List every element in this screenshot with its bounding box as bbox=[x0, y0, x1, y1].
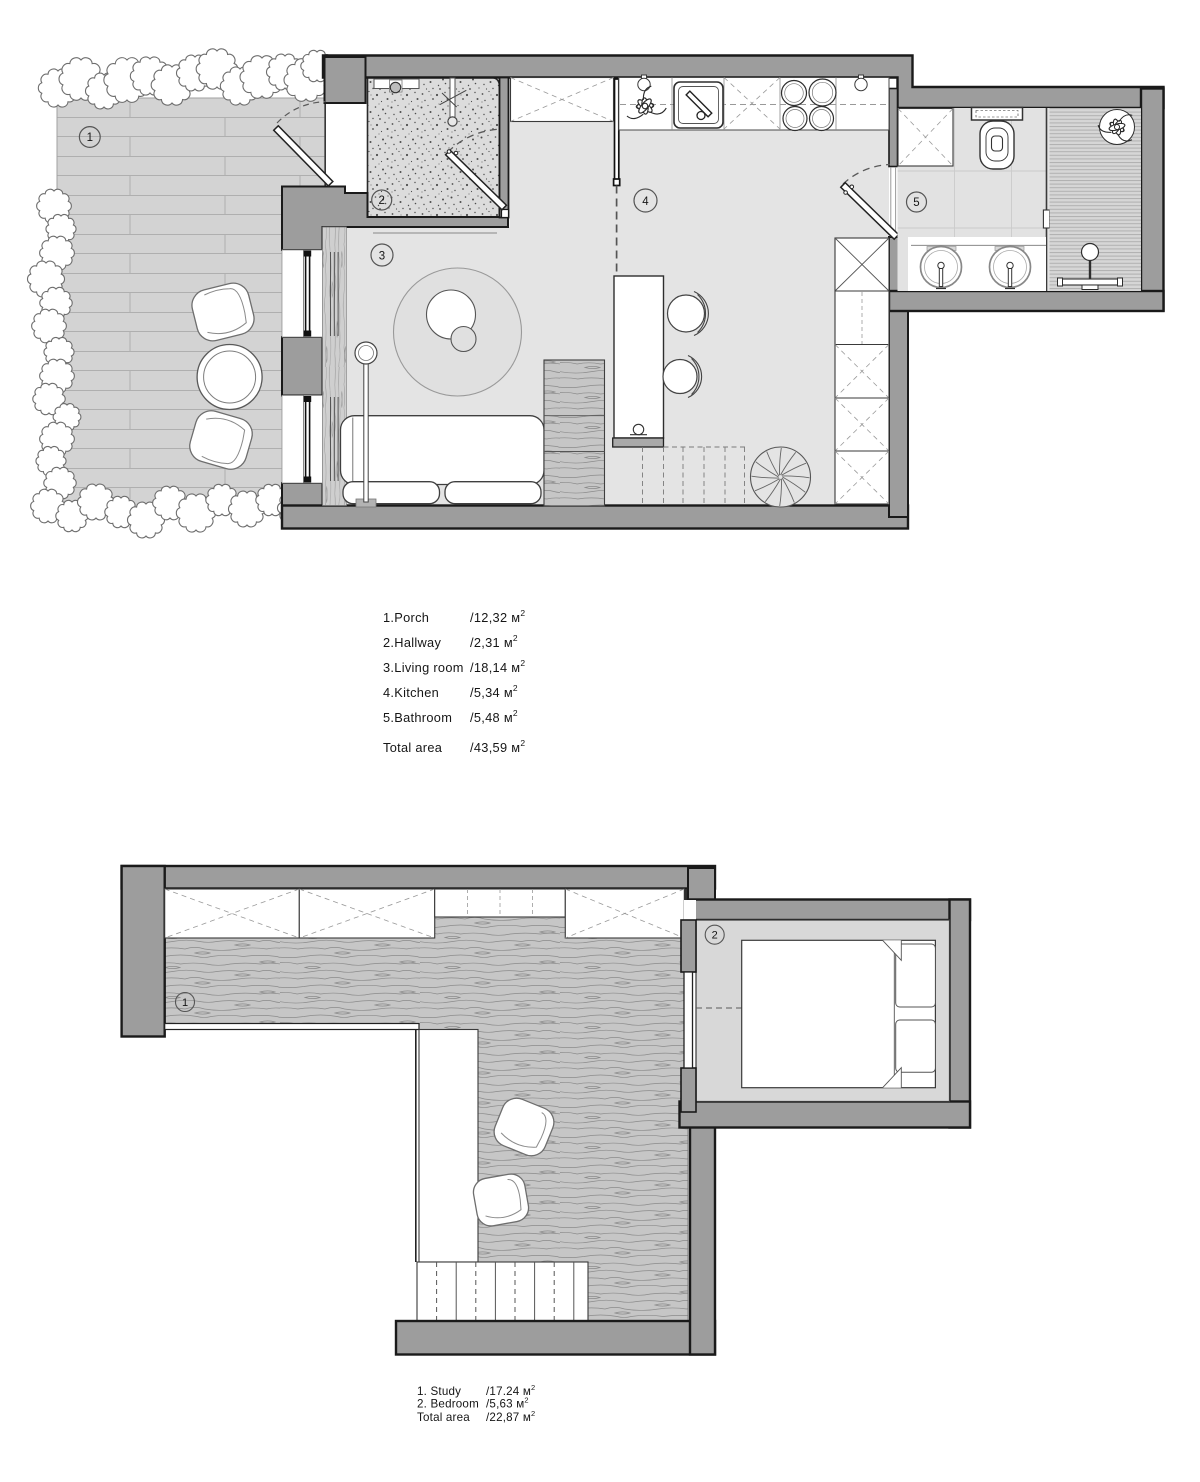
svg-text:/2,31 м2: /2,31 м2 bbox=[470, 633, 518, 650]
svg-text:2. Bedroom: 2. Bedroom bbox=[417, 1398, 479, 1411]
svg-text:1: 1 bbox=[87, 132, 93, 144]
svg-text:Total area: Total area bbox=[383, 740, 443, 755]
svg-text:/5,48 м2: /5,48 м2 bbox=[470, 708, 518, 725]
svg-text:2.Hallway: 2.Hallway bbox=[383, 635, 441, 650]
svg-text:1. Study: 1. Study bbox=[417, 1385, 461, 1398]
svg-text:5: 5 bbox=[913, 197, 919, 209]
svg-text:2: 2 bbox=[712, 930, 718, 942]
svg-text:/22,87 м2: /22,87 м2 bbox=[486, 1409, 535, 1424]
svg-text:/43,59 м2: /43,59 м2 bbox=[470, 738, 525, 755]
svg-text:3: 3 bbox=[379, 250, 385, 262]
svg-text:1: 1 bbox=[182, 997, 188, 1009]
svg-text:1.Porch: 1.Porch bbox=[383, 610, 429, 625]
svg-text:4.Kitchen: 4.Kitchen bbox=[383, 685, 439, 700]
svg-text:2: 2 bbox=[378, 195, 384, 207]
svg-text:3.Living room: 3.Living room bbox=[383, 660, 464, 675]
svg-text:Total area: Total area bbox=[417, 1411, 470, 1424]
svg-text:/12,32 м2: /12,32 м2 bbox=[470, 608, 525, 625]
svg-text:5.Bathroom: 5.Bathroom bbox=[383, 710, 452, 725]
svg-text:4: 4 bbox=[642, 196, 649, 208]
svg-text:/5,34 м2: /5,34 м2 bbox=[470, 683, 518, 700]
svg-text:/5,63 м2: /5,63 м2 bbox=[486, 1396, 529, 1411]
svg-text:/18,14 м2: /18,14 м2 bbox=[470, 658, 525, 675]
